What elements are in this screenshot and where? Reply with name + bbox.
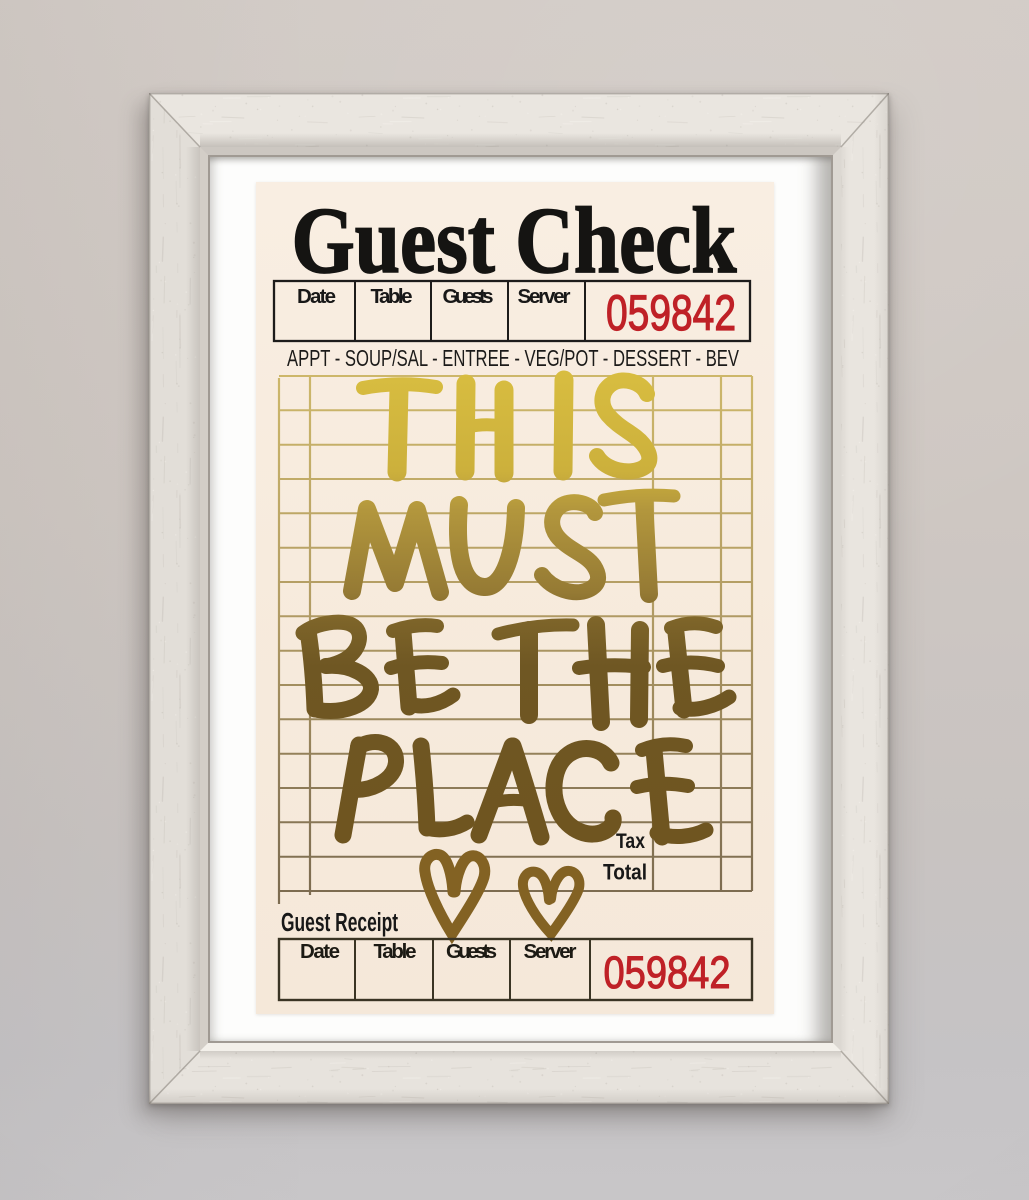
svg-text:Table: Table [371,285,413,308]
svg-text:Tax: Tax [616,829,645,853]
svg-text:059842: 059842 [606,285,736,341]
svg-text:Table: Table [374,940,417,963]
svg-text:059842: 059842 [604,947,731,998]
svg-text:Guest Receipt: Guest Receipt [281,909,398,937]
svg-text:Guests: Guests [446,940,497,963]
svg-text:Server: Server [518,285,571,308]
svg-text:Date: Date [297,285,336,308]
svg-text:Total: Total [603,860,647,885]
svg-text:Guests: Guests [443,285,494,308]
svg-text:Server: Server [524,940,577,963]
svg-text:APPT - SOUP/SAL - ENTREE - VEG: APPT - SOUP/SAL - ENTREE - VEG/POT - DES… [287,345,739,371]
svg-text:Guest Check: Guest Check [292,189,738,293]
svg-text:Date: Date [300,940,340,963]
